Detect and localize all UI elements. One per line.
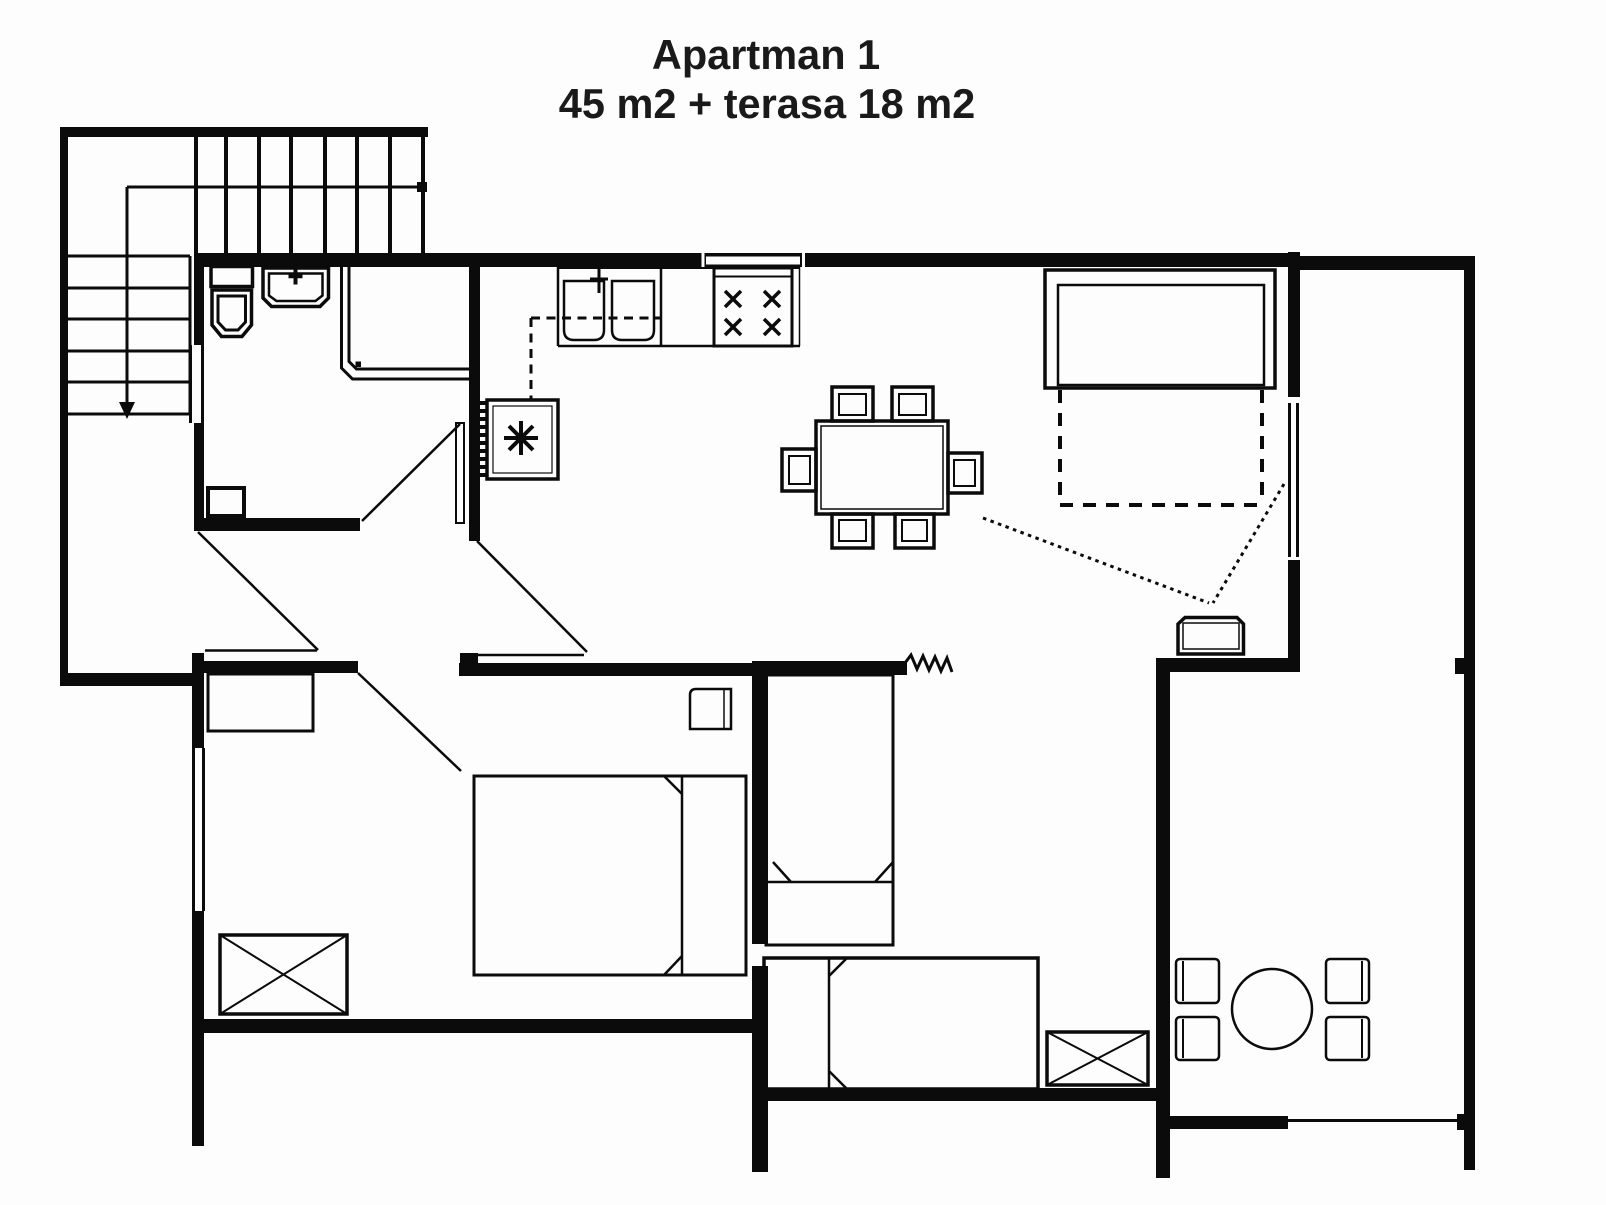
svg-text:Apartman 1: Apartman 1 <box>652 31 880 78</box>
svg-text:45 m2 + terasa 18 m2: 45 m2 + terasa 18 m2 <box>559 80 975 127</box>
